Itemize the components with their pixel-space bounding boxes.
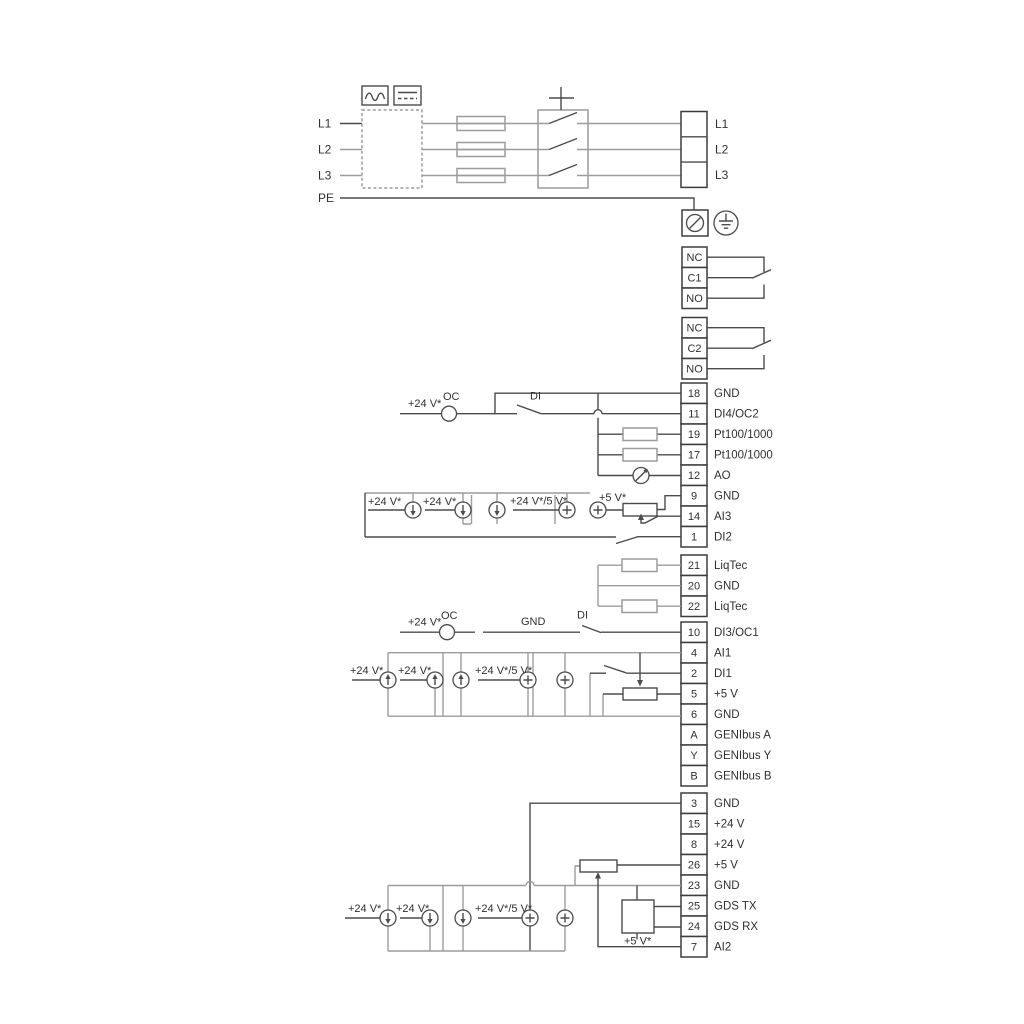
terminal-number: 21 — [688, 560, 700, 572]
voltage-source-icon — [520, 672, 536, 688]
terminal-label: AO — [714, 470, 731, 482]
terminal-number: 24 — [688, 921, 700, 933]
pe-terminal-icon — [682, 210, 708, 236]
wiring-label: +24 V* — [368, 496, 402, 508]
terminal-label: +24 V — [714, 839, 745, 851]
open-collector-icon — [440, 625, 455, 640]
terminal-label: GDS TX — [714, 901, 757, 913]
terminal-number: 26 — [688, 860, 700, 872]
relay-terminal: NO — [686, 293, 703, 305]
voltage-source-icon — [590, 502, 606, 518]
power-input-label: L2 — [318, 143, 332, 157]
current-source-up-icon — [380, 672, 396, 688]
current-source-up-icon — [427, 672, 443, 688]
terminal-number: 5 — [691, 689, 697, 701]
terminal-number: 22 — [688, 601, 700, 613]
relay-terminal: C1 — [687, 273, 701, 285]
liqtec-terminal-group: 21LiqTec 20GND 22LiqTec — [681, 555, 747, 617]
current-source-down-icon — [489, 502, 505, 518]
wiring-label: +5 V* — [624, 936, 652, 948]
terminal-number: 10 — [688, 627, 700, 639]
terminal-label: GND — [714, 388, 740, 400]
terminal-number: 7 — [691, 942, 697, 954]
earth-ground-icon — [714, 211, 738, 235]
terminal-label: GENIbus B — [714, 771, 772, 783]
terminal-number: 14 — [688, 511, 700, 523]
wiring-label: DI — [577, 610, 588, 622]
gds-sensor-icon — [622, 900, 654, 933]
terminal-label: GND — [714, 491, 740, 503]
wiring-label: OC — [443, 391, 460, 403]
wiring-label: +24 V* — [348, 903, 382, 915]
wiring-label: OC — [441, 610, 458, 622]
wiring-label: +24 V* — [398, 665, 432, 677]
terminal-number: 18 — [688, 388, 700, 400]
terminal-number: 20 — [688, 581, 700, 593]
power-output-label: L2 — [715, 143, 729, 157]
terminal-number: 4 — [691, 648, 697, 660]
relay-terminal: NO — [686, 364, 703, 376]
ac-symbol-icon — [362, 86, 388, 105]
power-terminal-block: L1 L2 L3 — [681, 112, 729, 188]
terminal-number: 2 — [691, 668, 697, 680]
current-source-down-icon — [455, 502, 471, 518]
terminal-number: 23 — [688, 880, 700, 892]
terminal-label: GND — [714, 709, 740, 721]
terminal-number: 1 — [691, 532, 697, 544]
terminal-label: AI1 — [714, 648, 731, 660]
wiring-label: +24 V* — [350, 665, 384, 677]
terminal-label: DI1 — [714, 668, 732, 680]
terminal-number: 17 — [688, 450, 700, 462]
current-source-down-icon — [380, 910, 396, 926]
power-output-label: L1 — [715, 117, 729, 131]
power-input-label: L1 — [318, 117, 332, 131]
terminal-label: LiqTec — [714, 560, 747, 572]
terminal-number: 15 — [688, 819, 700, 831]
terminal-number: 19 — [688, 429, 700, 441]
relay-terminal: C2 — [687, 343, 701, 355]
terminal-number: 12 — [688, 470, 700, 482]
terminal-label: GENIbus A — [714, 730, 771, 742]
terminal-number: A — [690, 730, 698, 742]
terminal-number: B — [690, 771, 697, 783]
terminal-label: LiqTec — [714, 601, 747, 613]
voltage-source-icon — [522, 910, 538, 926]
power-input-label: L3 — [318, 169, 332, 183]
terminal-label: DI3/OC1 — [714, 627, 759, 639]
terminal-label: AI3 — [714, 511, 731, 523]
current-source-down-icon — [405, 502, 421, 518]
terminal-number: 8 — [691, 839, 697, 851]
terminal-label: +24 V — [714, 819, 745, 831]
terminal-label: DI2 — [714, 532, 732, 544]
relay-terminal: NC — [687, 323, 703, 335]
terminal-number: 11 — [688, 409, 699, 421]
terminal-number: Y — [690, 750, 698, 762]
wiring-diagram: L1 L2 L3 PE — [0, 0, 1024, 1024]
potentiometer-icon — [580, 860, 617, 872]
open-collector-icon — [442, 406, 457, 421]
current-source-down-icon — [455, 910, 471, 926]
current-source-up-icon — [453, 672, 469, 688]
wiring-label: GND — [521, 616, 546, 628]
diagram-canvas: L1 L2 L3 PE — [0, 0, 1024, 1024]
analog-output-meter-icon — [633, 468, 649, 484]
voltage-source-icon — [557, 910, 573, 926]
current-source-down-icon — [422, 910, 438, 926]
terminal-number: 25 — [688, 901, 700, 913]
potentiometer-icon — [623, 504, 657, 517]
terminal-label: +5 V — [714, 860, 738, 872]
voltage-source-icon — [557, 672, 573, 688]
terminal-number: 9 — [691, 491, 697, 503]
wiring-label: +24 V* — [408, 398, 442, 410]
terminal-label: DI4/OC2 — [714, 409, 759, 421]
terminal-label: +5 V — [714, 689, 738, 701]
background — [0, 0, 1024, 1024]
terminal-label: AI2 — [714, 942, 731, 954]
wiring-label: DI — [530, 391, 541, 403]
terminal-number: 6 — [691, 709, 697, 721]
terminal-label: Pt100/1000 — [714, 450, 773, 462]
terminal-label: GND — [714, 880, 740, 892]
wiring-label: +24 V*/5 V* — [510, 496, 568, 508]
voltage-source-icon — [559, 502, 575, 518]
terminal-number: 3 — [691, 798, 697, 810]
wiring-label: +24 V* — [423, 496, 457, 508]
terminal-label: Pt100/1000 — [714, 429, 773, 441]
potentiometer-icon — [623, 688, 657, 700]
power-output-label: L3 — [715, 168, 729, 182]
terminal-label: GENIbus Y — [714, 750, 772, 762]
dc-symbol-icon — [394, 86, 421, 105]
terminal-label: GND — [714, 581, 740, 593]
relay-terminal: NC — [687, 252, 703, 264]
wiring-label: +5 V* — [599, 492, 627, 504]
power-input-label: PE — [318, 191, 334, 205]
terminal-label: GND — [714, 798, 740, 810]
terminal-label: GDS RX — [714, 921, 758, 933]
wiring-label: +24 V* — [408, 617, 442, 629]
